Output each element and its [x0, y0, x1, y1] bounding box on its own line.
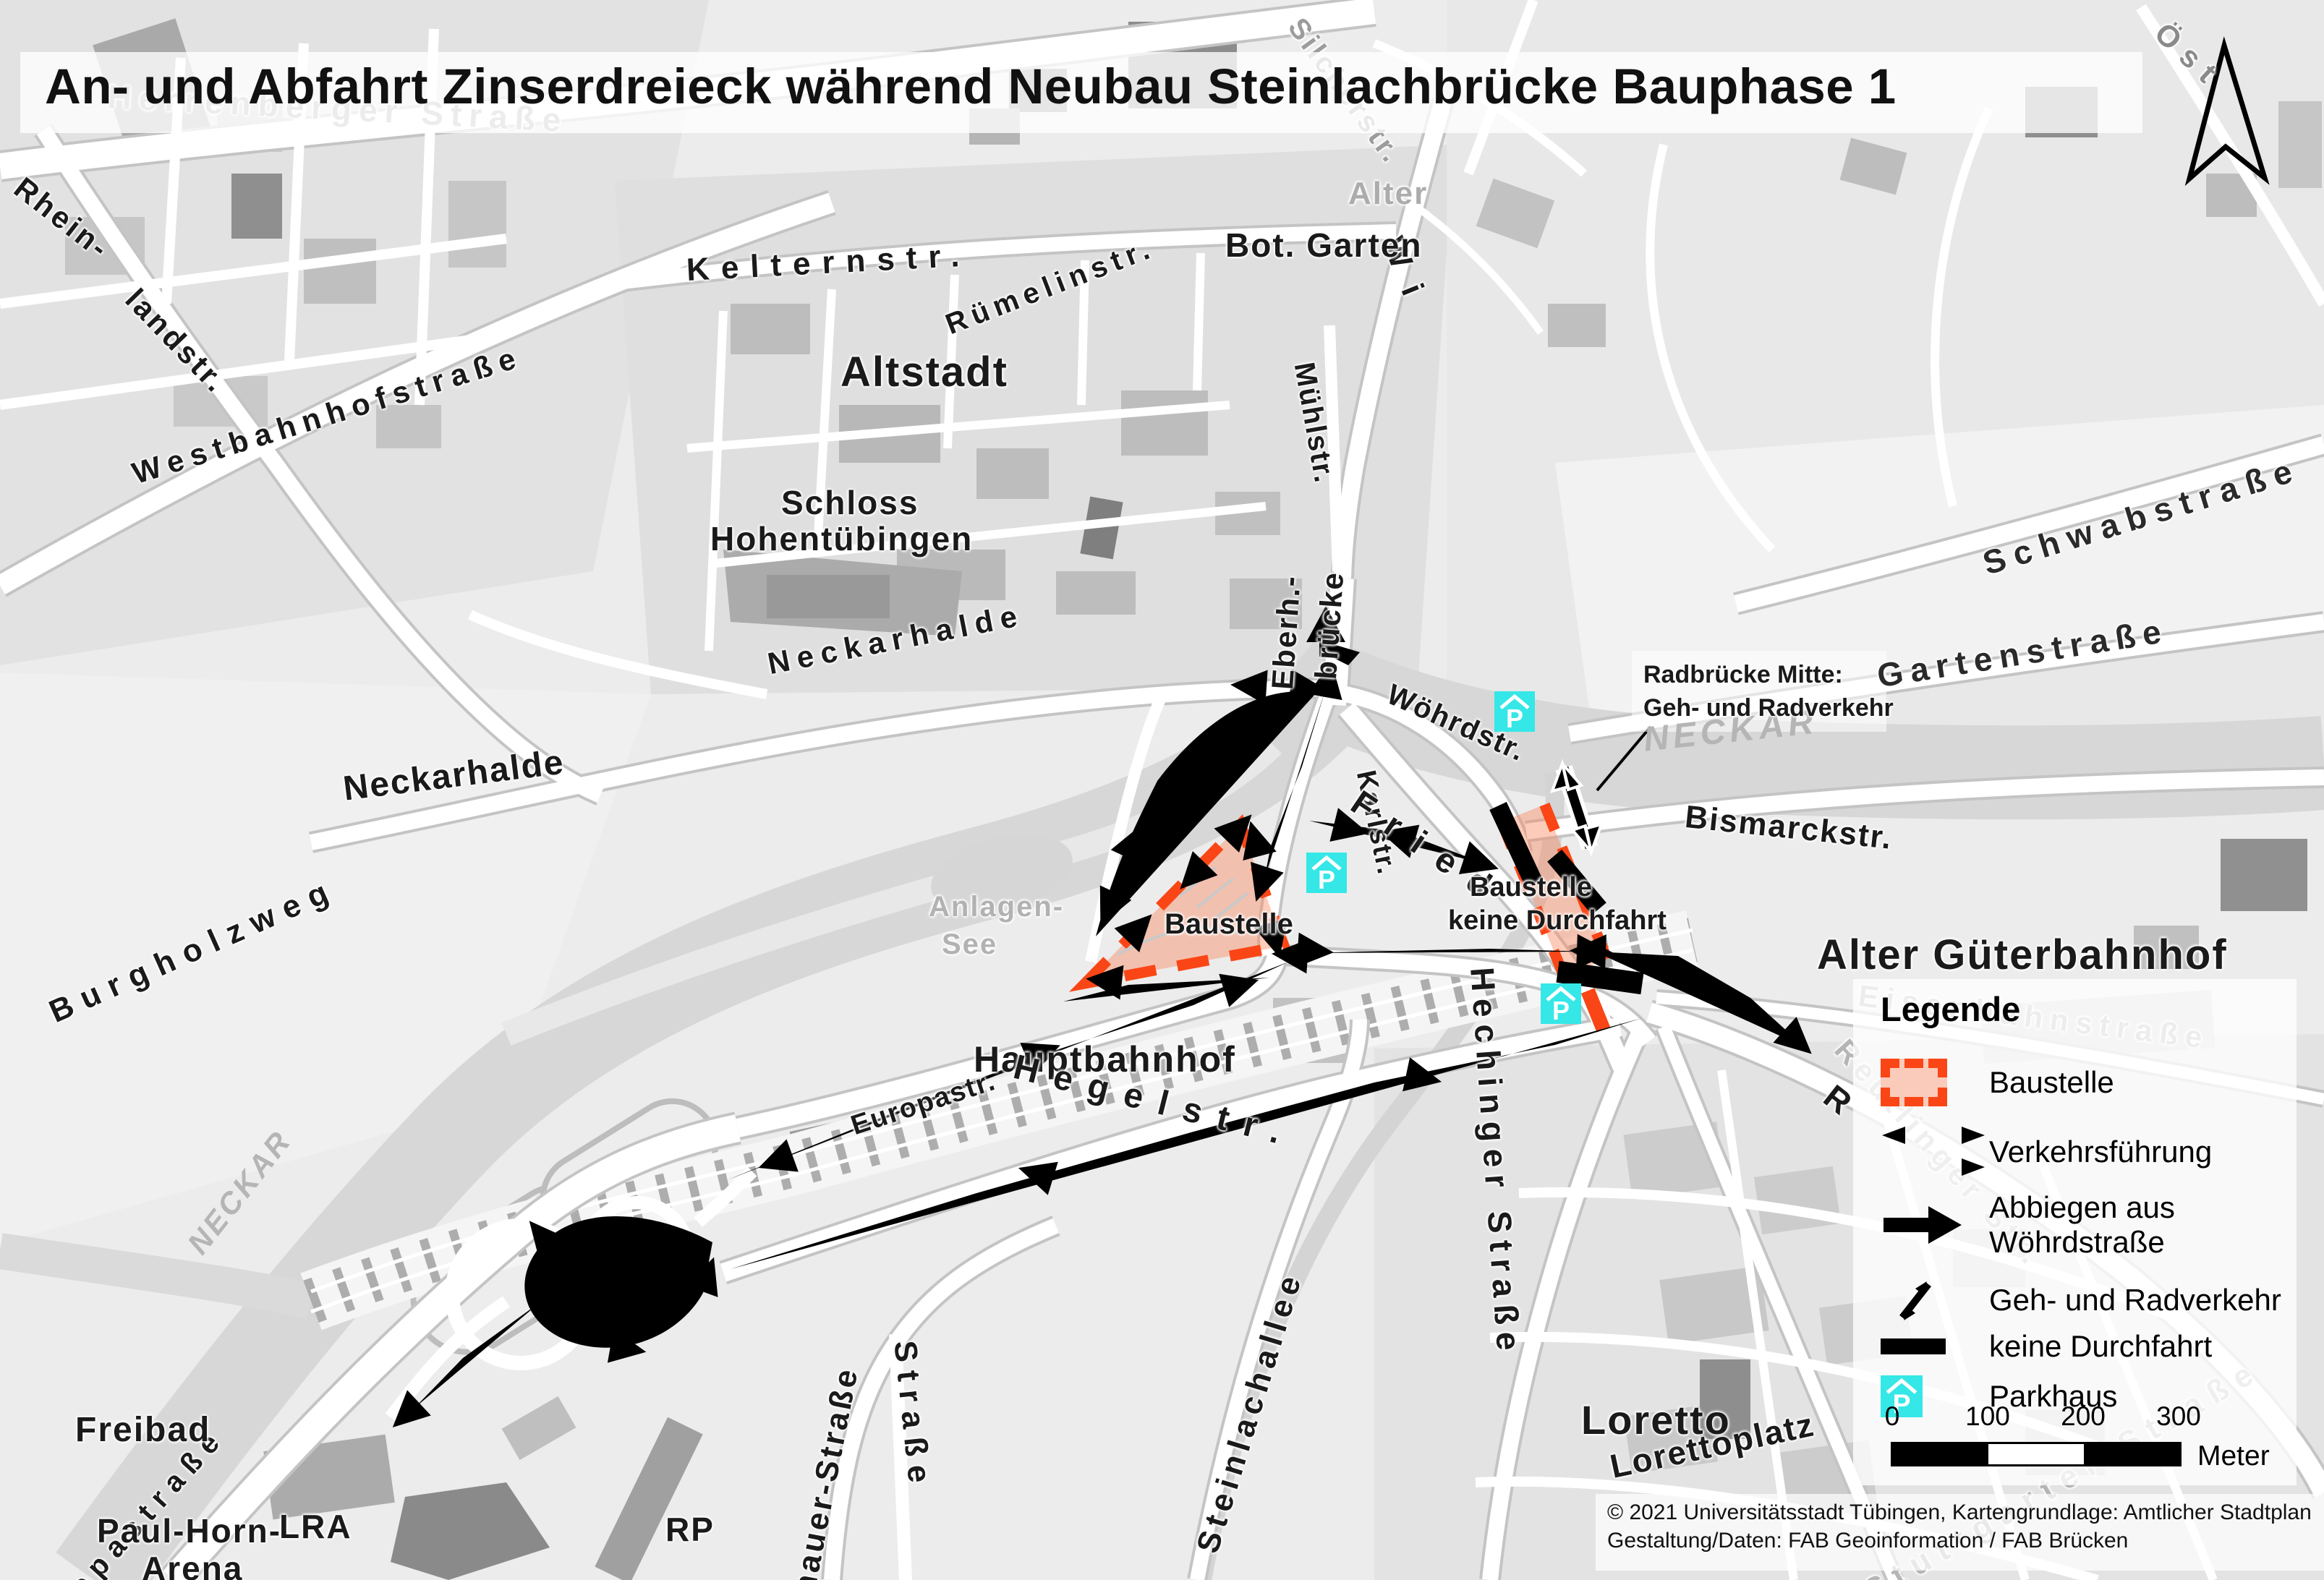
legend-title: Legende — [1853, 979, 2297, 1029]
parkhaus-icon — [1494, 691, 1535, 733]
parkhaus-icon — [1306, 853, 1347, 894]
scale-bar: 0 100 200 300 Meter — [1853, 1396, 2297, 1482]
page-title: An- und Abfahrt Zinserdreieck während Ne… — [20, 52, 2142, 115]
baustelle-swatch-icon — [1881, 1059, 1947, 1106]
scale-bar-graphic — [1891, 1442, 2182, 1466]
scale-tick: 0 — [1885, 1401, 1900, 1432]
scale-unit: Meter — [2197, 1440, 2270, 1472]
abbiegen-icon — [1881, 1205, 1967, 1245]
copyright: © 2021 Universitätsstadt Tübingen, Karte… — [1596, 1494, 2324, 1571]
map-page: P — [0, 0, 2324, 1580]
copyright-line2: Gestaltung/Daten: FAB Geoinformation / F… — [1607, 1526, 2324, 1555]
durchfahrt-bar-icon — [1881, 1338, 1946, 1354]
legend-item-baustelle: Baustelle — [1881, 1059, 2114, 1106]
legend-item-abbiegen: Abbiegen aus Wöhrdstraße — [1881, 1190, 2175, 1260]
title-band: An- und Abfahrt Zinserdreieck während Ne… — [20, 52, 2142, 133]
copyright-line1: © 2021 Universitätsstadt Tübingen, Karte… — [1607, 1494, 2324, 1526]
legend-item-durchfahrt: keine Durchfahrt — [1881, 1329, 2212, 1364]
scale-tick: 300 — [2156, 1401, 2201, 1432]
scale-tick: 200 — [2061, 1401, 2106, 1432]
gehrad-icon — [1881, 1267, 1953, 1333]
scale-tick: 100 — [1965, 1401, 2010, 1432]
verkehrsfuehrung-icon — [1881, 1121, 1989, 1183]
legend-item-verkehrsfuehrung: Verkehrsführung — [1881, 1121, 2212, 1183]
parkhaus-icon — [1541, 983, 1581, 1025]
legend-item-gehrad: Geh- und Radverkehr — [1881, 1267, 2281, 1333]
